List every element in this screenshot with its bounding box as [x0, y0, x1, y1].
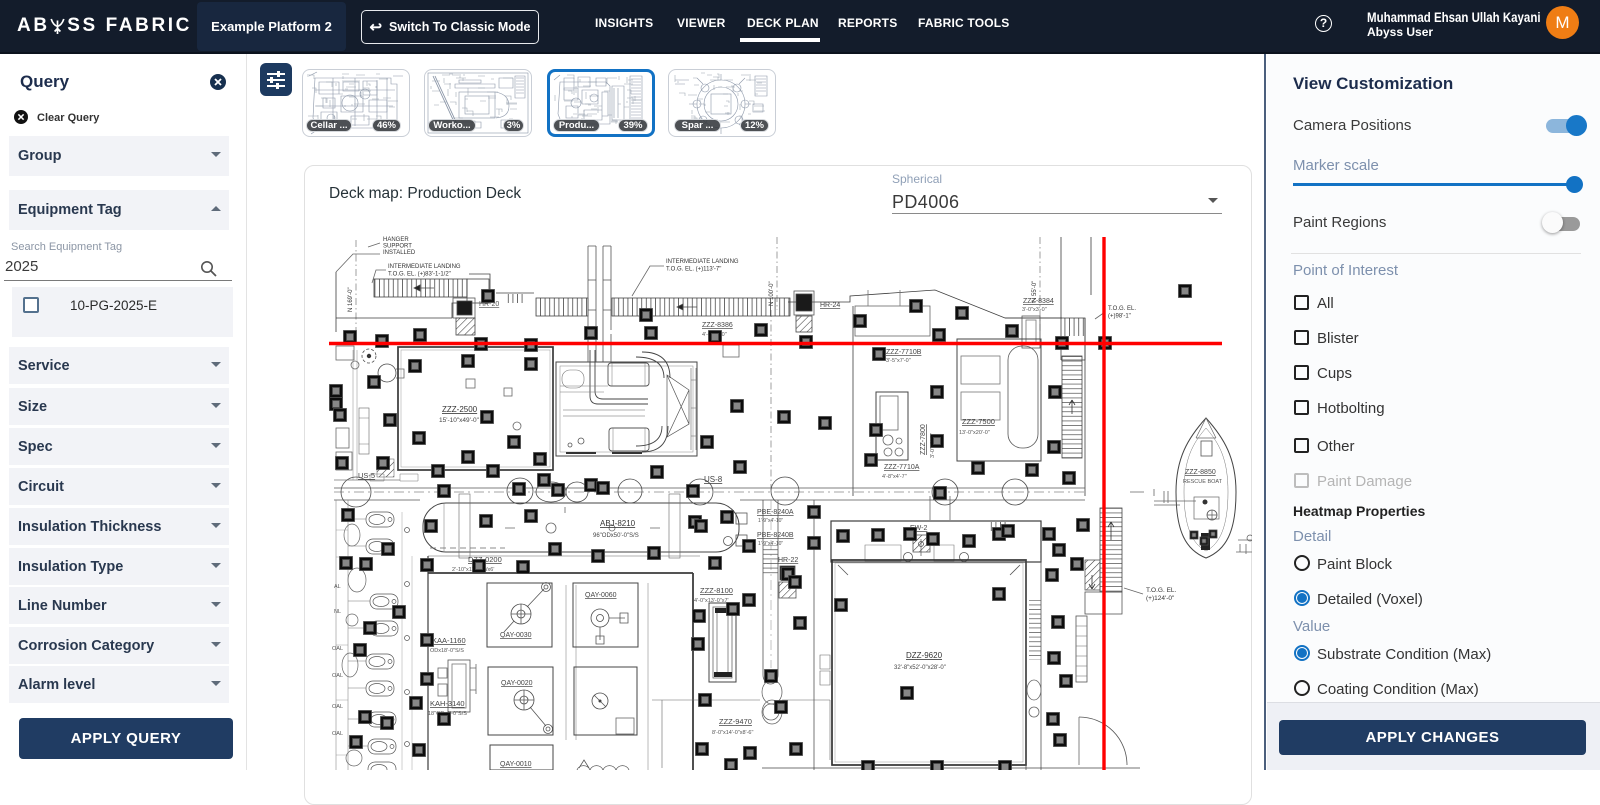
- svg-text:INSTALLED: INSTALLED: [383, 250, 416, 256]
- svg-text:4'-0"x13'-0"x7': 4'-0"x13'-0"x7': [694, 598, 729, 604]
- svg-text:QAY-0030: QAY-0030: [500, 632, 532, 639]
- svg-text:T.O.G. EL.: T.O.G. EL.: [1108, 306, 1136, 312]
- svg-text:3'-0"x3'-0": 3'-0"x3'-0": [1022, 307, 1047, 313]
- svg-text:(+)124'-0": (+)124'-0": [1146, 595, 1175, 602]
- svg-text:ZZZ-8386: ZZZ-8386: [702, 322, 733, 329]
- svg-text:T.O.G. EL. (+)83'-1-1/2": T.O.G. EL. (+)83'-1-1/2": [388, 272, 451, 278]
- svg-text:4'-8"x4'-7": 4'-8"x4'-7": [882, 474, 907, 480]
- svg-text:1'-9"x4'-10": 1'-9"x4'-10": [758, 541, 783, 547]
- svg-text:QAY-0060: QAY-0060: [585, 592, 617, 599]
- svg-text:ZZZ-7500: ZZZ-7500: [962, 417, 995, 426]
- svg-text:N 169'-0": N 169'-0": [348, 287, 354, 312]
- svg-text:NL: NL: [334, 609, 341, 615]
- svg-text:ZZZ-7710B: ZZZ-7710B: [886, 349, 922, 356]
- svg-text:ZZZ-8100: ZZZ-8100: [700, 586, 733, 595]
- svg-text:US-8: US-8: [704, 475, 723, 484]
- svg-text:8'-0"x14'-0"x8'-6": 8'-0"x14'-0"x8'-6": [712, 730, 753, 736]
- svg-text:OAL: OAL: [332, 646, 343, 652]
- svg-text:DZZ-9620: DZZ-9620: [906, 651, 943, 660]
- svg-text:ODx18'-0"S/S: ODx18'-0"S/S: [430, 648, 464, 654]
- svg-text:HANGER: HANGER: [383, 237, 409, 243]
- svg-text:QAY-0020: QAY-0020: [501, 680, 533, 687]
- svg-text:ZZZ-8850: ZZZ-8850: [1185, 469, 1216, 476]
- svg-text:ZZZ-7710A: ZZZ-7710A: [884, 464, 920, 471]
- svg-text:ZZZ-8384: ZZZ-8384: [1023, 298, 1054, 305]
- svg-text:PBE-8240B: PBE-8240B: [757, 532, 794, 539]
- svg-text:AL: AL: [334, 584, 341, 590]
- svg-text:RESCUE BOAT: RESCUE BOAT: [1183, 479, 1223, 485]
- svg-text:(+)98'-1": (+)98'-1": [1108, 314, 1131, 320]
- svg-text:HR-24: HR-24: [820, 302, 840, 309]
- svg-text:INTERMEDIATE LANDING: INTERMEDIATE LANDING: [388, 264, 461, 270]
- svg-text:SUPPORT: SUPPORT: [383, 244, 412, 250]
- svg-text:OAL: OAL: [332, 673, 343, 679]
- svg-text:OAL: OAL: [332, 731, 343, 737]
- svg-text:ABJ-8210: ABJ-8210: [600, 519, 636, 528]
- svg-text:T.O.G. EL. (+)113'-7": T.O.G. EL. (+)113'-7": [666, 267, 721, 273]
- svg-text:ZZZ-9470: ZZZ-9470: [719, 717, 752, 726]
- svg-text:INTERMEDIATE LANDING: INTERMEDIATE LANDING: [666, 259, 739, 265]
- svg-text:T.O.G. EL.: T.O.G. EL.: [1146, 587, 1177, 594]
- svg-text:KAH-3140: KAH-3140: [430, 699, 465, 708]
- svg-text:US-5: US-5: [358, 471, 375, 480]
- svg-text:PBE-8240A: PBE-8240A: [757, 509, 794, 516]
- svg-text:96"ODx50'-0"S/S: 96"ODx50'-0"S/S: [593, 533, 639, 539]
- svg-text:13'-0"x20'-0": 13'-0"x20'-0": [959, 430, 990, 436]
- svg-text:1'-9"x4'-10": 1'-9"x4'-10": [758, 518, 783, 524]
- svg-text:HR-22: HR-22: [778, 557, 798, 564]
- svg-text:ZZZ-7800: ZZZ-7800: [920, 424, 927, 455]
- svg-text:QAY-0010: QAY-0010: [500, 761, 532, 768]
- svg-text:3'-5"x7'-0": 3'-5"x7'-0": [886, 358, 911, 364]
- svg-text:KAA-1160: KAA-1160: [432, 636, 466, 645]
- svg-text:ZZZ-2500: ZZZ-2500: [442, 405, 478, 414]
- svg-text:32'-8"x52'-0"x28'-0": 32'-8"x52'-0"x28'-0": [894, 665, 946, 671]
- svg-text:15'-10"x49'-0": 15'-10"x49'-0": [439, 417, 480, 424]
- svg-text:OAL: OAL: [332, 704, 343, 710]
